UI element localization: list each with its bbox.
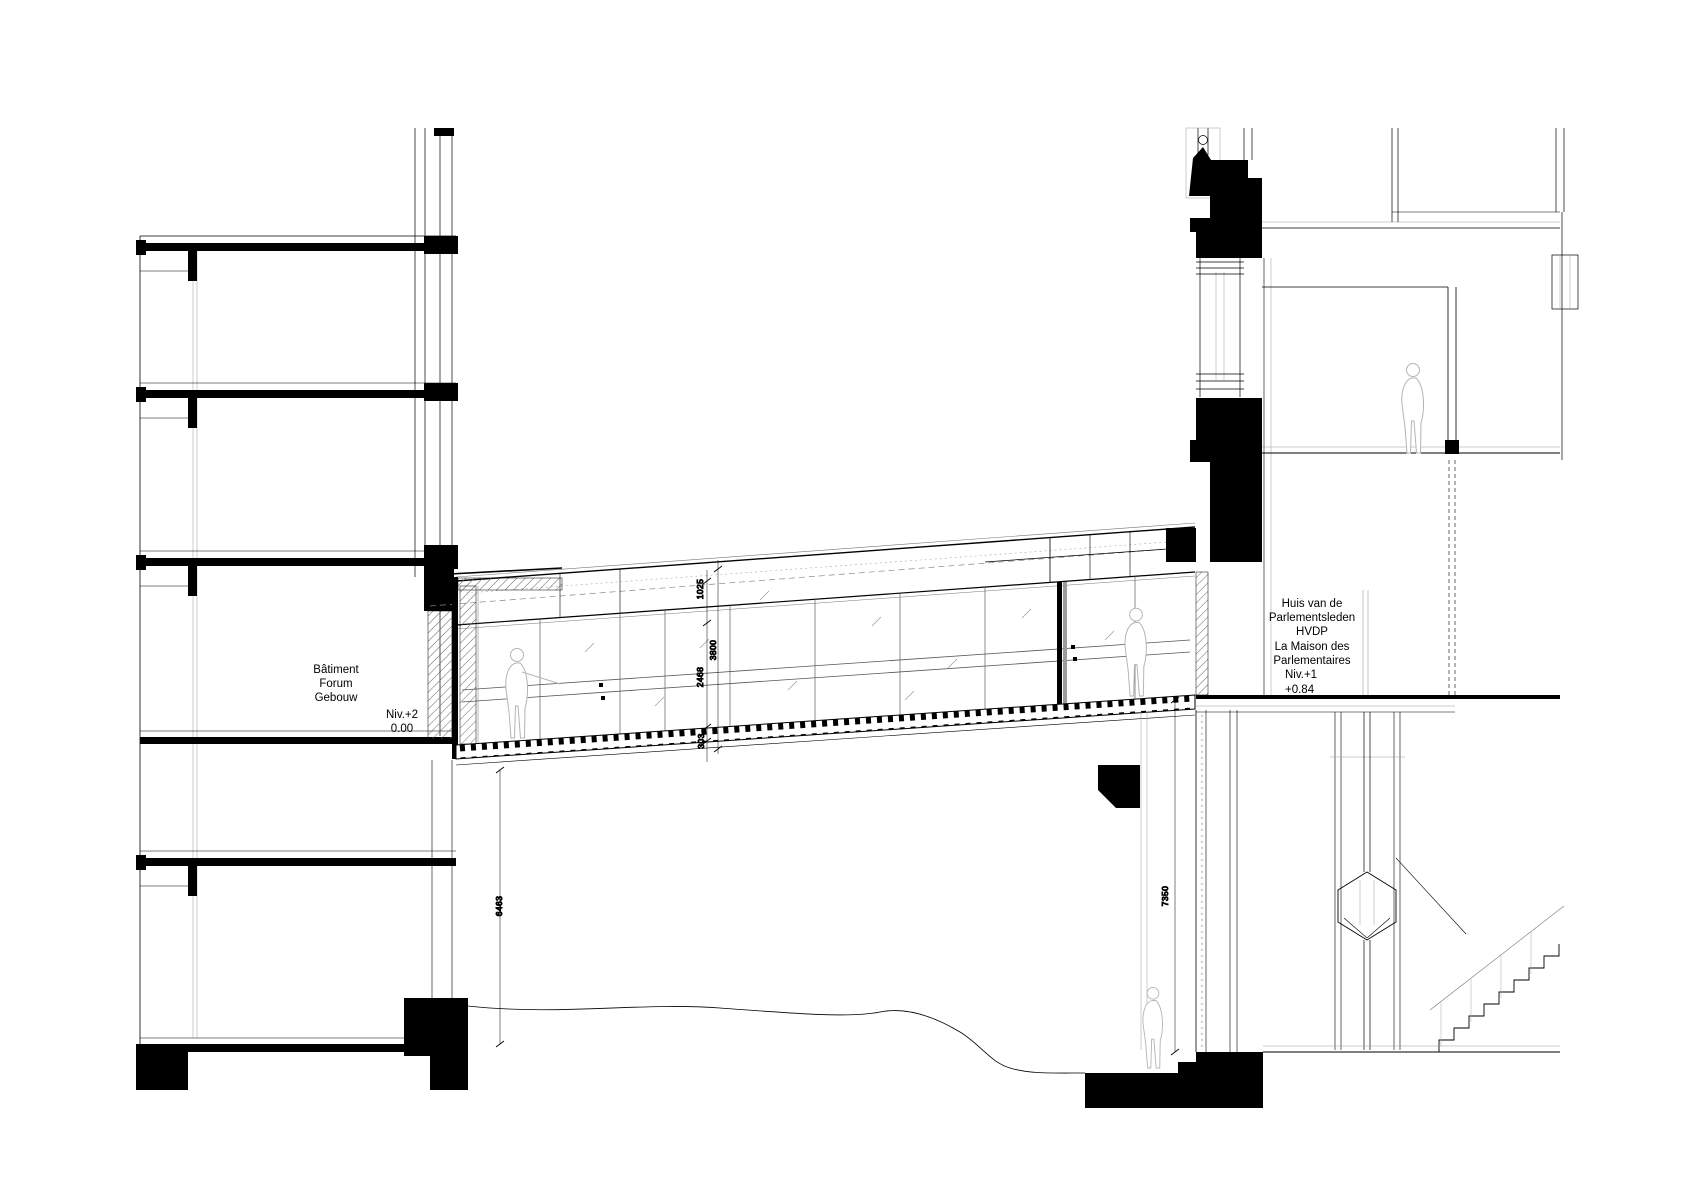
- right-building-name-line4: La Maison des: [1275, 641, 1350, 653]
- right-building-section: [1098, 128, 1578, 1052]
- floor-slab: [136, 851, 456, 896]
- glass-glints: [585, 591, 1114, 706]
- dimension-right-clearance: 7350: [1160, 886, 1170, 907]
- right-building-name-line1: Huis van de: [1282, 598, 1343, 610]
- wall-corbel: [1098, 765, 1140, 808]
- section-drawing: 1025 3800 2468 303 6463 7350: [0, 0, 1684, 1191]
- right-building-name-line2: Parlementsleden: [1269, 612, 1355, 624]
- stair-hall: [1330, 712, 1466, 1050]
- figure-bridge-right: [1125, 608, 1146, 696]
- footbridge-section: [424, 523, 1208, 765]
- right-building-level: Niv.+1: [1285, 669, 1317, 681]
- lower-cornice: [1190, 398, 1262, 480]
- floor-slab: [136, 551, 456, 596]
- floor-slab: [136, 236, 456, 281]
- left-ground-slab: [136, 1038, 404, 1090]
- left-foundation: [404, 998, 468, 1090]
- right-foundation: [1085, 1052, 1263, 1108]
- figure-courtyard: [1143, 987, 1163, 1068]
- bridge-handrail: [462, 640, 1190, 702]
- floor-slab: [136, 383, 456, 428]
- right-building-label: Huis van de Parlementsleden HVDP La Mais…: [1269, 598, 1355, 696]
- right-building-elevation: +0.84: [1285, 684, 1315, 696]
- left-building-label: Bâtiment Forum Gebouw Niv.+2 0.00: [313, 664, 418, 735]
- dimension-floor-depth: 303: [696, 733, 706, 748]
- dimension-left-clearance: 6463: [494, 896, 504, 917]
- drawing-canvas: 1025 3800 2468 303 6463 7350: [0, 0, 1684, 1191]
- clearance-dimensions: 6463 7350: [494, 697, 1179, 1055]
- dimension-overall-height: 3800: [708, 640, 718, 661]
- left-building-name-line1: Bâtiment: [313, 664, 359, 676]
- right-building-name-line5: Parlementaires: [1273, 655, 1351, 667]
- figure-bridge-left: [506, 649, 528, 739]
- facade-column: [1196, 258, 1244, 397]
- figure-upper-floor: [1402, 364, 1424, 454]
- left-building-level: Niv.+2: [386, 709, 418, 721]
- staircase: [1424, 906, 1564, 1052]
- right-building-name-line3: HVDP: [1296, 626, 1328, 638]
- dimension-fascia-height: 1025: [695, 579, 705, 600]
- lantern: [1338, 872, 1396, 940]
- left-building-name-line3: Gebouw: [315, 692, 359, 704]
- left-building-section: [136, 128, 468, 1090]
- wall-below-bridge: [1098, 710, 1237, 1052]
- left-building-elevation: 0.00: [391, 723, 413, 735]
- bridge-floor: [456, 695, 1195, 765]
- left-building-name-line2: Forum: [319, 678, 352, 690]
- dimension-glass-height: 2468: [695, 667, 705, 688]
